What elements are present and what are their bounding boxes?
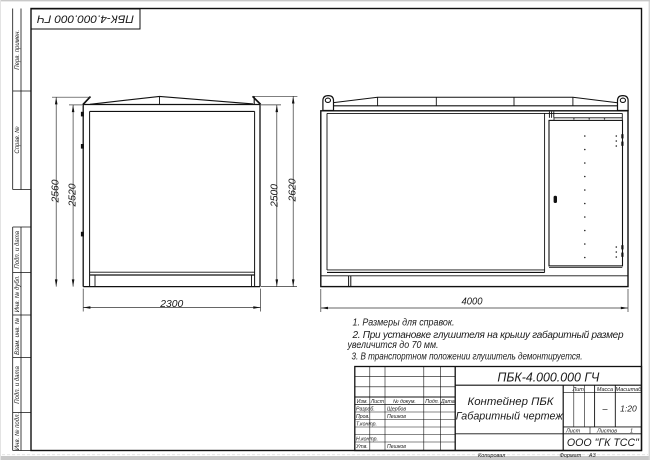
svg-text:2560: 2560 xyxy=(51,179,62,203)
svg-text:Пешков: Пешков xyxy=(387,414,406,420)
svg-text:А3: А3 xyxy=(588,453,597,459)
svg-text:Пров.: Пров. xyxy=(356,414,370,420)
svg-text:Взам. инв. №: Взам. инв. № xyxy=(14,317,21,355)
svg-text:2500: 2500 xyxy=(270,184,281,208)
svg-text:Масса: Масса xyxy=(597,387,613,393)
svg-text:Дата: Дата xyxy=(440,399,455,405)
svg-text:Листов: Листов xyxy=(596,429,617,435)
svg-text:Масштаб: Масштаб xyxy=(616,387,643,393)
svg-text:Изм.: Изм. xyxy=(357,399,368,405)
svg-text:3. В транспортном положении гл: 3. В транспортном положении глушитель де… xyxy=(352,351,583,362)
svg-text:2. При установке глушителя на: 2. При установке глушителя на крышу габа… xyxy=(352,329,624,341)
svg-text:1: 1 xyxy=(630,429,633,435)
svg-text:Подп. и дата: Подп. и дата xyxy=(15,230,21,268)
svg-text:Т.контр.: Т.контр. xyxy=(356,422,377,428)
svg-text:1:20: 1:20 xyxy=(620,404,637,414)
svg-text:Лит.: Лит. xyxy=(571,387,585,393)
svg-text:ООО "ГК ТСС": ООО "ГК ТСС" xyxy=(567,437,640,449)
svg-text:4000: 4000 xyxy=(462,297,483,308)
svg-text:Н.контр.: Н.контр. xyxy=(356,437,378,443)
svg-text:Подп.: Подп. xyxy=(425,399,439,405)
svg-text:2620: 2620 xyxy=(288,178,299,202)
svg-text:Формат: Формат xyxy=(559,453,581,459)
svg-text:увеличится до 70 мм.: увеличится до 70 мм. xyxy=(347,340,439,351)
svg-text:ПБК-4.000.000 ГЧ: ПБК-4.000.000 ГЧ xyxy=(497,370,600,384)
svg-text:Инв. № дубл.: Инв. № дубл. xyxy=(14,275,21,312)
svg-text:Щербов: Щербов xyxy=(387,407,406,413)
svg-text:Утв.: Утв. xyxy=(356,444,368,450)
svg-text:Инв. № подл.: Инв. № подл. xyxy=(14,413,21,450)
svg-text:Лист: Лист xyxy=(565,429,581,435)
svg-text:Пешков: Пешков xyxy=(387,444,406,450)
svg-text:№ докум.: № докум. xyxy=(393,399,416,405)
svg-text:Разраб.: Разраб. xyxy=(356,407,375,413)
svg-text:1. Размеры для справок.: 1. Размеры для справок. xyxy=(353,318,455,329)
svg-text:Копировал: Копировал xyxy=(478,453,505,459)
svg-text:–: – xyxy=(601,404,608,414)
svg-text:Подп. и дата: Подп. и дата xyxy=(15,366,21,404)
svg-text:ПБК-4.000.000 ГЧ: ПБК-4.000.000 ГЧ xyxy=(36,13,134,25)
svg-text:Габаритный чертеж: Габаритный чертеж xyxy=(456,411,564,423)
svg-text:Лист: Лист xyxy=(370,399,385,405)
svg-text:2300: 2300 xyxy=(159,299,183,310)
svg-text:Справ. №: Справ. № xyxy=(14,126,21,154)
svg-text:2520: 2520 xyxy=(68,183,79,207)
svg-text:Перв. примен.: Перв. примен. xyxy=(15,30,21,70)
svg-text:Контейнер ПБК: Контейнер ПБК xyxy=(468,396,555,408)
